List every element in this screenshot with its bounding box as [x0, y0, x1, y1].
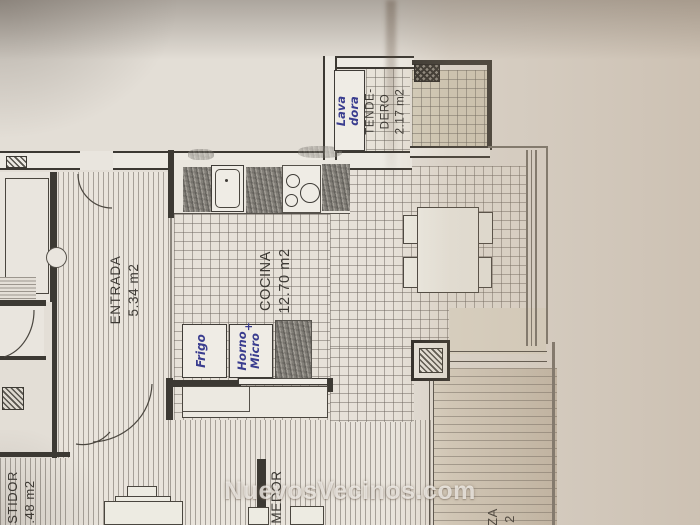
peninsula-counter: [182, 386, 328, 418]
floor-plan-photo: ENTRADA 5.34 m2 COCINA 12.70 m2 TENDE- D…: [0, 0, 700, 525]
window-line-2: [531, 150, 532, 346]
cocina-label: COCINA 12.70 m2: [257, 229, 297, 333]
window-line-1: [526, 150, 528, 346]
hall-column-icon: [46, 247, 67, 268]
entrada-name: ENTRADA: [107, 244, 125, 336]
counter-bar: [238, 378, 331, 385]
oven-note-plus: +: [243, 322, 256, 331]
tendedero-name-1: TENDE-: [364, 69, 379, 155]
cabinet-shading: [246, 167, 283, 213]
plan-outline-right: [546, 146, 548, 344]
tendedero-label: TENDE- DERO 2.17 m2: [364, 69, 415, 155]
entrada-label: ENTRADA 5.34 m2: [107, 244, 143, 336]
drying-area-floor: [412, 70, 488, 150]
cabinet-shading: [322, 164, 350, 211]
washer-note: Lava dora: [335, 91, 363, 131]
tendedero-area: 2.17 m2: [393, 69, 408, 155]
sink-icon: [211, 165, 244, 212]
pillar-icon: [6, 156, 27, 168]
kitchen-counter: [174, 160, 350, 214]
oven-note-2: Micro: [249, 326, 262, 376]
left-hall-wall: [52, 172, 57, 458]
corner-pillar-icon: [2, 387, 24, 410]
topright-wall-v: [487, 60, 492, 150]
passage-floor: [330, 348, 414, 422]
cooktop-icon: [282, 165, 321, 213]
cocina-name: COCINA: [257, 229, 276, 333]
plan-outline-top: [488, 146, 548, 148]
washer-note-2: dora: [348, 91, 361, 131]
terrace-right-wall: [552, 342, 555, 525]
entrada-area: 5.34 m2: [125, 244, 143, 336]
dining-table: [417, 207, 479, 293]
vestidor-area: .48 m2: [22, 457, 39, 525]
drying-dining-wall: [410, 146, 490, 158]
small-room: [0, 306, 44, 358]
oven-note: Horno Micro +: [236, 326, 264, 376]
kitchen-left-line: [170, 218, 172, 382]
furniture-fragment: [248, 507, 269, 525]
vestidor-label: ESTIDOR .48 m2: [5, 457, 41, 525]
fridge-note: Frigo: [195, 329, 213, 373]
armchair-seat: [104, 501, 183, 525]
chair: [477, 212, 493, 244]
cocina-area: 12.70 m2: [276, 229, 295, 333]
photo-shade-topleft: [0, 0, 180, 140]
watermark: NuevosVecinos.com: [210, 477, 490, 509]
photo-shade-top: [0, 0, 700, 60]
small-room-wall-bottom: [0, 356, 46, 360]
tendedero-name-2: DERO: [378, 69, 393, 155]
door-jamb: [166, 378, 173, 420]
window-line-3: [535, 150, 537, 346]
chair: [477, 257, 492, 288]
entrada-floor: [58, 172, 170, 525]
terraza-area-label: 2: [502, 512, 518, 525]
vestidor-name: ESTIDOR: [5, 457, 22, 525]
front-door-opening: [80, 151, 113, 170]
terrace-railing: [448, 351, 547, 362]
vent-pillar-icon: [414, 64, 440, 82]
terrace-pillar-icon: [411, 340, 450, 381]
